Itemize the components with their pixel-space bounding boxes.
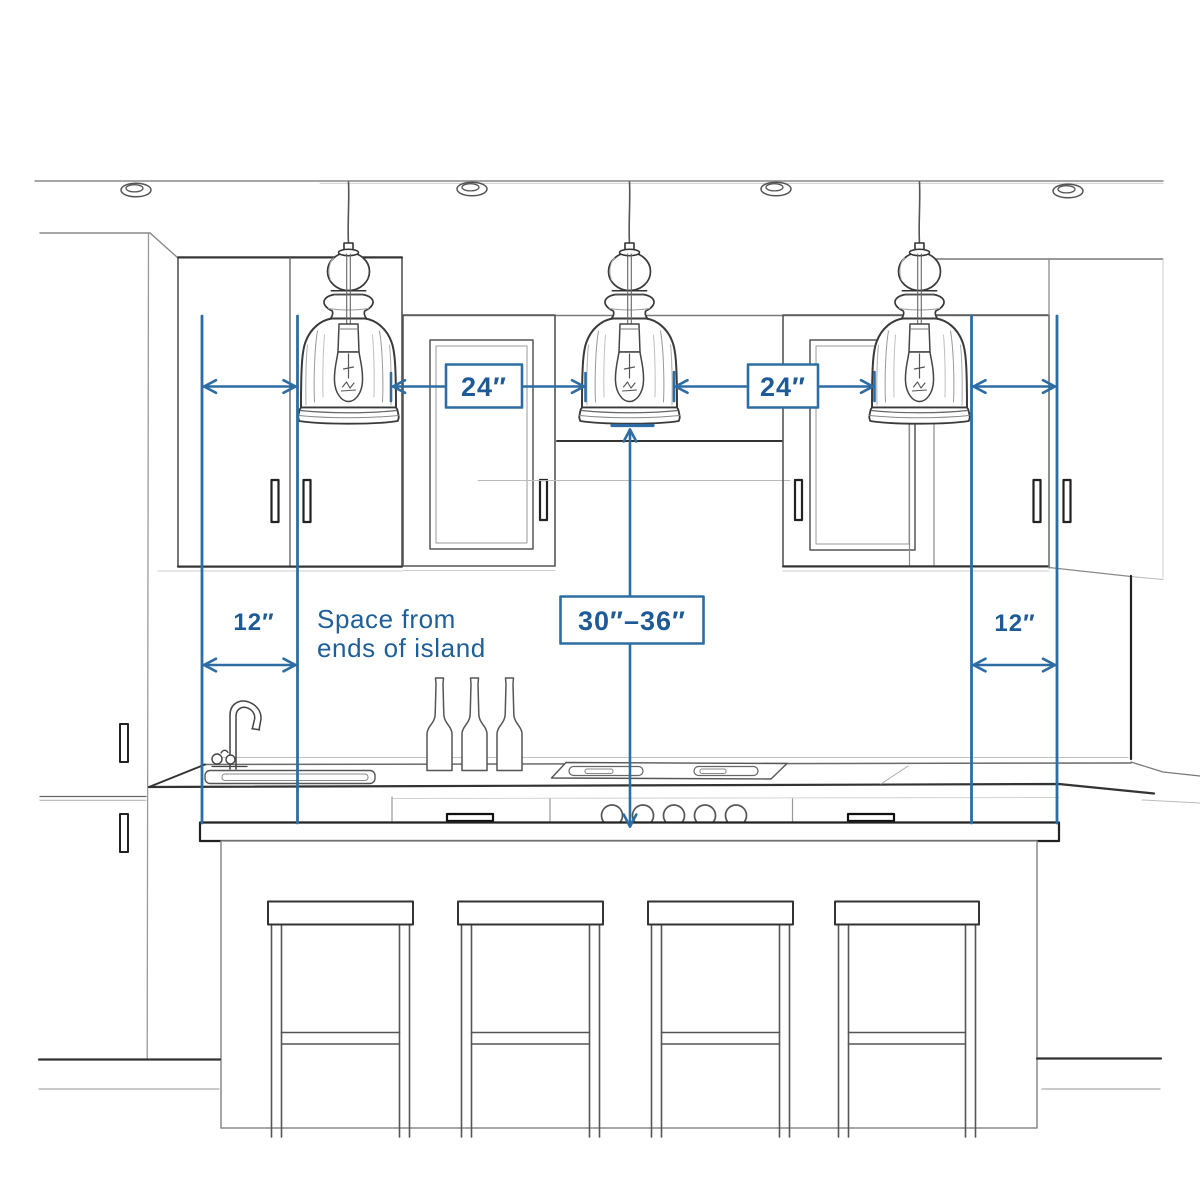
svg-text:ends of island: ends of island: [317, 633, 486, 663]
svg-text:30″–36″: 30″–36″: [578, 606, 686, 636]
svg-text:24″: 24″: [461, 372, 507, 402]
svg-text:12″: 12″: [233, 609, 274, 636]
svg-text:24″: 24″: [760, 372, 806, 402]
svg-text:Space from: Space from: [317, 604, 456, 634]
svg-text:12″: 12″: [994, 610, 1035, 637]
